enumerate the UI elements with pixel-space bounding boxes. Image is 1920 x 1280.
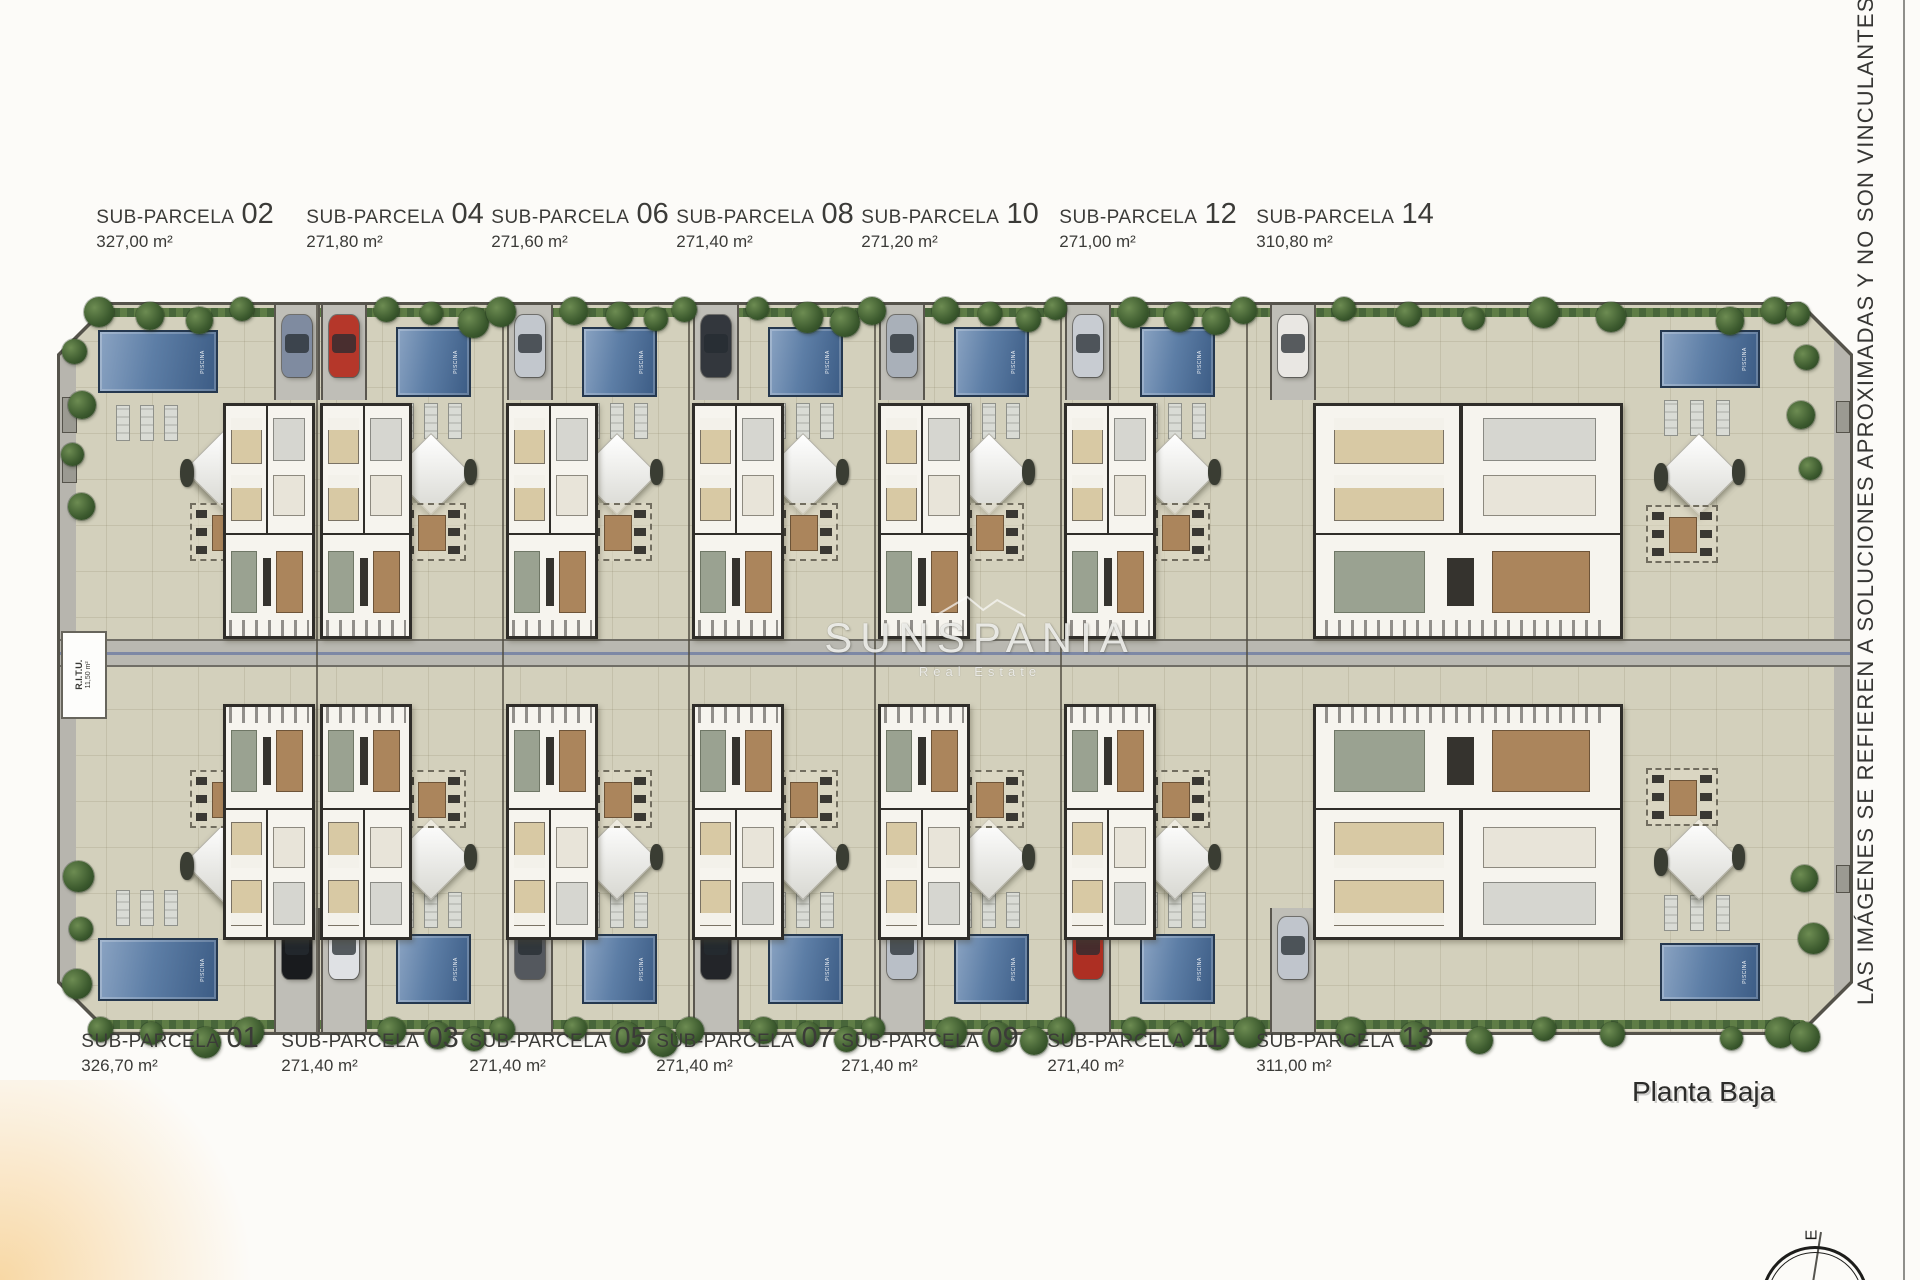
pool-label: PISCINA (453, 957, 459, 981)
parcel-number: 07 (801, 1022, 833, 1055)
plot-boundary-wall (1060, 305, 1062, 1032)
dining-chair (1700, 548, 1712, 556)
tv-unit (918, 558, 926, 606)
dining-chair (1192, 813, 1204, 821)
bed-pillow (1334, 913, 1443, 926)
dining-chair (1652, 793, 1664, 801)
car-windshield (332, 334, 357, 354)
car-icon (329, 315, 359, 377)
utility-meter-box (62, 397, 77, 433)
sofa (1334, 730, 1425, 792)
pool-label: PISCINA (1011, 350, 1017, 374)
outdoor-dining-table (1162, 515, 1189, 552)
pool-label: PISCINA (639, 350, 645, 374)
house (506, 704, 598, 940)
parcel-label: SUB-PARCELA13311,00 m² (1256, 1022, 1433, 1076)
dining-table-indoor (276, 730, 304, 792)
lounge-chair (1022, 459, 1035, 485)
dining-chair (448, 546, 460, 554)
lounge-chair (1208, 844, 1221, 870)
car-icon (887, 315, 917, 377)
bed-pillow (1072, 855, 1103, 868)
parcel-number: 01 (226, 1022, 258, 1055)
dining-chair (1192, 777, 1204, 785)
utility-room-text: R.I.T.U.11,50 m² (75, 660, 93, 690)
pool: PISCINA (954, 934, 1029, 1004)
sun-lounger (634, 403, 648, 439)
corner-glow (0, 1080, 300, 1280)
dining-chair (196, 813, 208, 821)
dining-chair (196, 528, 208, 536)
parcel-label-line1: SUB-PARCELA03 (281, 1022, 458, 1055)
interior-wall (695, 533, 781, 536)
central-road (60, 639, 1850, 667)
interior-wall (549, 406, 550, 534)
interior-wall (323, 808, 409, 811)
sofa (231, 730, 257, 792)
house (506, 403, 598, 639)
wardrobe (273, 475, 305, 516)
parcel-number: 14 (1401, 198, 1433, 231)
bed-pillow (700, 855, 731, 868)
utility-meter-box (1836, 865, 1850, 893)
parcel-number: 04 (451, 198, 483, 231)
bed-pillow (231, 855, 262, 868)
parcel-label: SUB-PARCELA05271,40 m² (469, 1022, 646, 1076)
parcel-label: SUB-PARCELA06271,60 m² (491, 198, 668, 252)
sun-lounger (1006, 892, 1020, 928)
tv-unit (1104, 737, 1112, 785)
dining-chair (1192, 528, 1204, 536)
parcel-number: 11 (1193, 1022, 1223, 1055)
bed-pillow (886, 913, 917, 926)
car-icon (515, 315, 545, 377)
house (320, 403, 412, 639)
porch (512, 620, 593, 636)
sofa (1072, 551, 1098, 613)
sofa (1334, 551, 1425, 613)
pool-label: PISCINA (453, 350, 459, 374)
pool-label: PISCINA (1742, 347, 1748, 371)
bathroom (273, 882, 305, 926)
bed-pillow (886, 475, 917, 488)
disclaimer-vertical-text: LAS IMÁGENES SE REFIEREN A SOLUCIONES AP… (1853, 0, 1879, 1005)
interior-wall (266, 809, 267, 937)
dining-chair (820, 813, 832, 821)
dining-chair (634, 777, 646, 785)
house (1313, 403, 1623, 639)
parcel-label: SUB-PARCELA09271,40 m² (841, 1022, 1018, 1076)
lounge-chair (836, 459, 849, 485)
bed-pillow (328, 855, 359, 868)
sofa (700, 551, 726, 613)
tv-unit (1104, 558, 1112, 606)
parcel-label-prefix: SUB-PARCELA (841, 1031, 979, 1053)
utility-meter-box (62, 455, 77, 483)
parcel-area: 271,80 m² (306, 232, 483, 252)
dining-chair (820, 777, 832, 785)
parcel-area: 271,40 m² (281, 1056, 458, 1076)
house (223, 403, 315, 639)
lounge-chair (1732, 844, 1745, 870)
dining-table-indoor (276, 551, 304, 613)
dining-chair (448, 813, 460, 821)
plot-boundary-wall (874, 305, 876, 1032)
pool-label: PISCINA (200, 350, 206, 374)
car-windshield (1076, 334, 1101, 354)
dining-table-indoor (1117, 551, 1145, 613)
parcel-label: SUB-PARCELA01326,70 m² (81, 1022, 258, 1076)
parcel-label-line1: SUB-PARCELA13 (1256, 1022, 1433, 1055)
dining-chair (1652, 512, 1664, 520)
sun-lounger (116, 890, 130, 926)
car-windshield (704, 334, 729, 354)
bed-pillow (1072, 913, 1103, 926)
page-border-line (1903, 0, 1905, 1280)
plot-boundary-wall (502, 305, 504, 1032)
parcel-label-line1: SUB-PARCELA02 (96, 198, 273, 231)
parcel-label-line1: SUB-PARCELA08 (676, 198, 853, 231)
parcel-label-prefix: SUB-PARCELA (491, 207, 629, 229)
outdoor-dining-table (1162, 782, 1189, 819)
compass-east-label: E (1803, 1230, 1821, 1241)
porch (884, 707, 965, 723)
dining-chair (1006, 777, 1018, 785)
outdoor-dining-table (418, 515, 445, 552)
porch (1070, 707, 1151, 723)
bed-pillow (886, 418, 917, 431)
porch (229, 707, 310, 723)
parcel-label: SUB-PARCELA12271,00 m² (1059, 198, 1236, 252)
outdoor-dining-table (604, 515, 631, 552)
dining-chair (1700, 811, 1712, 819)
parcel-area: 311,00 m² (1256, 1056, 1433, 1076)
dining-chair (634, 528, 646, 536)
pool-label: PISCINA (825, 350, 831, 374)
parcel-area: 310,80 m² (1256, 232, 1433, 252)
dining-chair (820, 546, 832, 554)
lounge-chair (1654, 848, 1668, 876)
parcel-label-prefix: SUB-PARCELA (281, 1031, 419, 1053)
site-ground: R.I.T.U.11,50 m²PISCINAPISCINAPISCINAPIS… (60, 305, 1850, 1032)
parcel-label-line1: SUB-PARCELA09 (841, 1022, 1018, 1055)
pool-label: PISCINA (825, 957, 831, 981)
tv-unit (360, 558, 368, 606)
sun-lounger (1716, 400, 1730, 436)
plot-boundary-wall (1246, 305, 1248, 1032)
dining-table-indoor (931, 730, 959, 792)
wardrobe (1114, 827, 1146, 868)
dining-chair (634, 795, 646, 803)
parcel-label-line1: SUB-PARCELA11 (1047, 1022, 1222, 1055)
dining-chair (1006, 795, 1018, 803)
pool-label: PISCINA (1742, 960, 1748, 984)
interior-wall (735, 406, 736, 534)
pool: PISCINA (98, 330, 218, 393)
lounge-chair (1732, 459, 1745, 485)
parcel-label-prefix: SUB-PARCELA (656, 1031, 794, 1053)
dining-chair (820, 528, 832, 536)
parcel-area: 271,40 m² (1047, 1056, 1222, 1076)
parcel-number: 08 (821, 198, 853, 231)
porch (698, 620, 779, 636)
parcel-label-line1: SUB-PARCELA10 (861, 198, 1038, 231)
dining-chair (1006, 546, 1018, 554)
pool: PISCINA (768, 934, 843, 1004)
parcel-label-prefix: SUB-PARCELA (1047, 1031, 1185, 1053)
bed-pillow (1072, 418, 1103, 431)
bed-pillow (886, 855, 917, 868)
porch (1325, 620, 1611, 636)
dining-chair (1006, 510, 1018, 518)
plot-boundary-wall (688, 305, 690, 1032)
parcel-number: 02 (241, 198, 273, 231)
tv-unit (263, 737, 271, 785)
parcel-label: SUB-PARCELA02327,00 m² (96, 198, 273, 252)
bed-pillow (328, 475, 359, 488)
parcel-label: SUB-PARCELA14310,80 m² (1256, 198, 1433, 252)
bed-pillow (700, 418, 731, 431)
bathroom (1483, 418, 1595, 462)
parcel-label-prefix: SUB-PARCELA (96, 207, 234, 229)
bed-pillow (231, 913, 262, 926)
bathroom (742, 418, 774, 462)
bathroom (928, 882, 960, 926)
dining-chair (1006, 528, 1018, 536)
lounge-chair (464, 459, 477, 485)
pool: PISCINA (768, 327, 843, 397)
porch (698, 707, 779, 723)
bathroom (1483, 882, 1595, 926)
interior-wall (509, 533, 595, 536)
dining-chair (448, 510, 460, 518)
parcel-label-line1: SUB-PARCELA14 (1256, 198, 1433, 231)
parcel-label: SUB-PARCELA08271,40 m² (676, 198, 853, 252)
car-windshield (890, 334, 915, 354)
porch (326, 707, 407, 723)
pool: PISCINA (1140, 327, 1215, 397)
dining-chair (1006, 813, 1018, 821)
sofa (328, 551, 354, 613)
parcel-area: 326,70 m² (81, 1056, 258, 1076)
wardrobe (556, 475, 588, 516)
lounge-chair (180, 852, 194, 880)
porch (512, 707, 593, 723)
dining-chair (1192, 795, 1204, 803)
dining-chair (1700, 512, 1712, 520)
sofa (1072, 730, 1098, 792)
interior-wall (881, 533, 967, 536)
interior-wall (509, 808, 595, 811)
interior-wall (363, 809, 364, 937)
parcel-area: 271,40 m² (469, 1056, 646, 1076)
car-icon (1278, 917, 1308, 979)
sun-lounger (820, 892, 834, 928)
tv-unit (732, 737, 740, 785)
sofa (514, 730, 540, 792)
plan-title: Planta Baja (1632, 1076, 1775, 1108)
wardrobe (556, 827, 588, 868)
dining-chair (1700, 793, 1712, 801)
interior-wall (226, 533, 312, 536)
compass-icon: E (1761, 1246, 1869, 1280)
shade-sail (1658, 433, 1740, 515)
parcel-area: 271,20 m² (861, 232, 1038, 252)
bathroom (370, 882, 402, 926)
pool-label: PISCINA (1011, 957, 1017, 981)
lounge-chair (650, 459, 663, 485)
porch (1070, 620, 1151, 636)
tv-unit (360, 737, 368, 785)
pool-label: PISCINA (200, 958, 206, 982)
parcel-label-prefix: SUB-PARCELA (469, 1031, 607, 1053)
outdoor-dining-table (1669, 780, 1697, 817)
dining-chair (1700, 530, 1712, 538)
parcel-label-prefix: SUB-PARCELA (1256, 207, 1394, 229)
parcel-label-line1: SUB-PARCELA04 (306, 198, 483, 231)
bed-pillow (514, 475, 545, 488)
tv-unit (918, 737, 926, 785)
interior-wall (1067, 533, 1153, 536)
parcel-label-line1: SUB-PARCELA01 (81, 1022, 258, 1055)
sun-lounger (1690, 895, 1704, 931)
sun-lounger (1716, 895, 1730, 931)
dining-table-indoor (373, 730, 401, 792)
house (1064, 704, 1156, 940)
bathroom (556, 418, 588, 462)
bed-pillow (328, 418, 359, 431)
dining-chair (1192, 510, 1204, 518)
bed-pillow (700, 475, 731, 488)
parcel-number: 03 (426, 1022, 458, 1055)
sun-lounger (634, 892, 648, 928)
car-icon (701, 315, 731, 377)
pool: PISCINA (1140, 934, 1215, 1004)
dining-chair (1192, 546, 1204, 554)
tv-unit (732, 558, 740, 606)
tv-unit (546, 737, 554, 785)
parcel-number: 12 (1204, 198, 1236, 231)
utility-room-box: R.I.T.U.11,50 m² (61, 631, 107, 719)
parcel-number: 05 (614, 1022, 646, 1055)
tv-unit (1447, 737, 1474, 785)
parcel-label-prefix: SUB-PARCELA (676, 207, 814, 229)
interior-wall (1107, 809, 1108, 937)
porch (229, 620, 310, 636)
dining-chair (1652, 548, 1664, 556)
bed-pillow (328, 913, 359, 926)
parcel-label-prefix: SUB-PARCELA (1256, 1031, 1394, 1053)
dining-chair (634, 546, 646, 554)
parcel-label-prefix: SUB-PARCELA (306, 207, 444, 229)
parcel-label-line1: SUB-PARCELA06 (491, 198, 668, 231)
house (223, 704, 315, 940)
dining-table-indoor (745, 551, 773, 613)
parcel-label-prefix: SUB-PARCELA (81, 1031, 219, 1053)
parcel-area: 271,00 m² (1059, 232, 1236, 252)
pool: PISCINA (582, 327, 657, 397)
house (878, 704, 970, 940)
dining-table-indoor (1117, 730, 1145, 792)
bed-pillow (514, 418, 545, 431)
porch (1325, 707, 1611, 723)
sun-lounger (1664, 400, 1678, 436)
sun-lounger (1192, 892, 1206, 928)
pool: PISCINA (396, 327, 471, 397)
dining-table-indoor (559, 730, 587, 792)
bed-pillow (231, 418, 262, 431)
parcel-number: 10 (1006, 198, 1038, 231)
sofa (886, 551, 912, 613)
parcel-label-line1: SUB-PARCELA07 (656, 1022, 833, 1055)
parcel-area: 327,00 m² (96, 232, 273, 252)
bed-pillow (1334, 475, 1443, 488)
bed-pillow (1334, 855, 1443, 868)
interior-wall (1459, 809, 1464, 937)
pool: PISCINA (582, 934, 657, 1004)
tv-unit (263, 558, 271, 606)
dining-chair (196, 510, 208, 518)
dining-table-indoor (559, 551, 587, 613)
sun-lounger (1006, 403, 1020, 439)
dining-chair (196, 546, 208, 554)
interior-wall (735, 809, 736, 937)
parcel-area: 271,40 m² (841, 1056, 1018, 1076)
porch (326, 620, 407, 636)
dining-chair (196, 795, 208, 803)
sofa (514, 551, 540, 613)
sun-lounger (140, 405, 154, 441)
dining-chair (448, 795, 460, 803)
sofa (231, 551, 257, 613)
road-center-line (60, 652, 1850, 655)
parcel-area: 271,40 m² (676, 232, 853, 252)
dining-chair (1652, 811, 1664, 819)
parcel-label-line1: SUB-PARCELA12 (1059, 198, 1236, 231)
house (320, 704, 412, 940)
porch (884, 620, 965, 636)
pool: PISCINA (954, 327, 1029, 397)
car-windshield (1281, 936, 1306, 956)
bathroom (273, 418, 305, 462)
bed-pillow (231, 475, 262, 488)
car-icon (1073, 315, 1103, 377)
bed-pillow (1334, 418, 1443, 431)
car-windshield (518, 334, 543, 354)
utility-room-label: R.I.T.U. (75, 660, 85, 690)
car-windshield (1281, 334, 1306, 354)
outdoor-dining-table (790, 782, 817, 819)
sofa (886, 730, 912, 792)
interior-wall (695, 808, 781, 811)
parcel-number: 09 (986, 1022, 1018, 1055)
wardrobe (742, 475, 774, 516)
interior-wall (363, 406, 364, 534)
pool-label: PISCINA (1197, 350, 1203, 374)
outdoor-dining-table (790, 515, 817, 552)
parcel-label-prefix: SUB-PARCELA (861, 207, 999, 229)
lounge-chair (836, 844, 849, 870)
sofa (700, 730, 726, 792)
house (878, 403, 970, 639)
lounge-chair (1022, 844, 1035, 870)
bed-pillow (514, 913, 545, 926)
sun-lounger (1690, 400, 1704, 436)
parcel-label: SUB-PARCELA10271,20 m² (861, 198, 1038, 252)
bathroom (1114, 882, 1146, 926)
dining-chair (196, 777, 208, 785)
interior-wall (1107, 406, 1108, 534)
